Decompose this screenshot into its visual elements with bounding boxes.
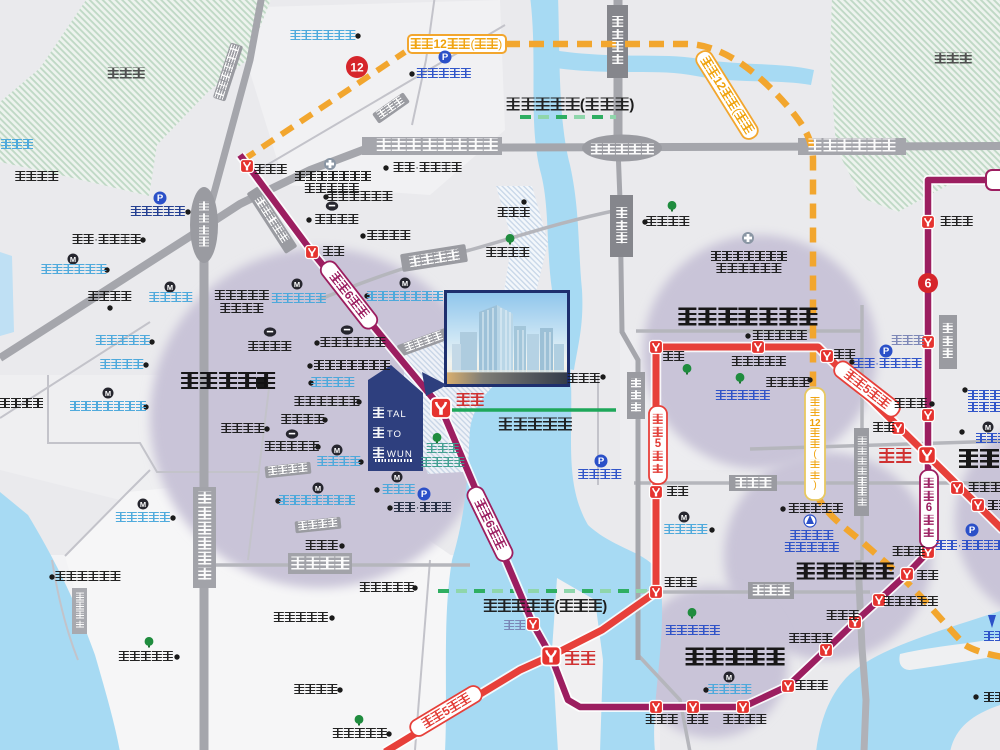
svg-text:M: M <box>334 446 340 455</box>
svg-text:M: M <box>167 283 173 292</box>
svg-text:P: P <box>883 346 890 357</box>
svg-text:M: M <box>105 389 111 398</box>
svg-text:P: P <box>598 456 605 467</box>
svg-text:M: M <box>294 280 300 289</box>
svg-text:M: M <box>394 473 400 482</box>
svg-text:M: M <box>402 279 408 288</box>
svg-text:P: P <box>969 525 976 536</box>
svg-text:M: M <box>726 673 732 682</box>
svg-text:M: M <box>140 500 146 509</box>
svg-text:M: M <box>315 484 321 493</box>
svg-text:M: M <box>681 513 687 522</box>
svg-text:12: 12 <box>350 61 364 75</box>
svg-text:P: P <box>157 193 164 204</box>
svg-text:M: M <box>985 423 991 432</box>
svg-text:P: P <box>442 52 449 63</box>
svg-text:6: 6 <box>925 277 932 291</box>
svg-text:M: M <box>70 255 76 264</box>
svg-text:P: P <box>421 489 428 500</box>
